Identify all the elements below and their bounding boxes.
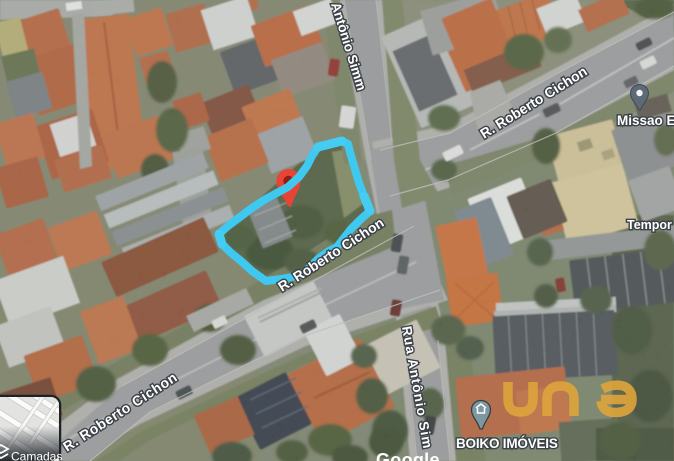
svg-text:Camadas: Camadas	[11, 450, 62, 461]
svg-text:BOIKO IMÓVEIS: BOIKO IMÓVEIS	[456, 436, 558, 451]
svg-text:Tempor: Tempor	[627, 218, 672, 232]
svg-text:Google: Google	[376, 450, 440, 461]
svg-text:Missao E: Missao E	[617, 113, 674, 128]
